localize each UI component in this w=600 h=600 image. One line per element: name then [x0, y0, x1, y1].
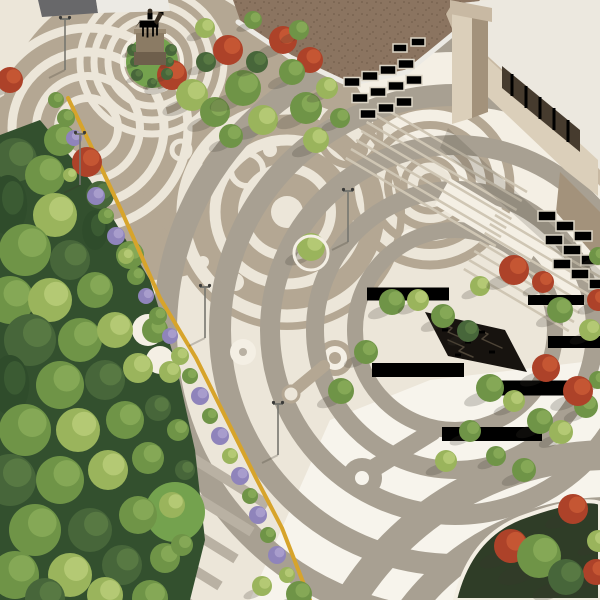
tree-highlight: [54, 460, 80, 486]
lamp-pole: [204, 288, 206, 338]
box: [574, 231, 592, 241]
box: [455, 354, 461, 357]
tree-highlight: [467, 422, 479, 434]
box: [393, 44, 407, 52]
tree-highlight: [64, 557, 88, 581]
paving-ring: [239, 348, 247, 356]
tree-highlight: [165, 69, 172, 76]
box: [380, 66, 396, 75]
tree-highlight: [259, 578, 270, 589]
box: [589, 279, 600, 289]
tree-highlight: [4, 280, 30, 306]
tree-highlight: [465, 322, 477, 334]
box: [142, 26, 144, 37]
tree-highlight: [306, 49, 320, 63]
box: [360, 110, 376, 119]
statue-pedestal: [134, 29, 166, 65]
tree-highlight: [182, 462, 193, 473]
tree-highlight: [203, 54, 214, 65]
tree-highlight: [133, 499, 154, 520]
tree-highlight: [228, 126, 241, 139]
lamp-head: [74, 131, 77, 134]
tree-highlight: [312, 129, 326, 143]
tree-highlight: [259, 108, 276, 125]
box: [553, 108, 556, 130]
tree-highlight: [224, 38, 241, 55]
paving-ring: [355, 471, 369, 485]
shape: [96, 0, 170, 13]
tree-highlight: [2, 181, 24, 215]
tree-highlight: [120, 404, 141, 425]
tree-highlight: [218, 429, 228, 439]
box: [539, 97, 542, 119]
paving-ring: [263, 143, 277, 157]
tree-highlight: [83, 150, 100, 167]
tree-highlight: [44, 282, 68, 306]
tree-highlight: [100, 580, 120, 600]
box: [378, 104, 394, 113]
tree-highlight: [558, 422, 571, 435]
tree-highlight: [110, 315, 130, 335]
lamp-head: [59, 16, 62, 19]
tree-highlight: [135, 70, 142, 77]
lamp-head: [208, 284, 211, 287]
tree-highlight: [100, 363, 122, 385]
tree-highlight: [540, 273, 552, 285]
box: [372, 363, 464, 377]
box: [406, 76, 422, 85]
box: [563, 245, 581, 255]
aerial-plaza-render: [0, 0, 600, 600]
tree-highlight: [9, 555, 35, 581]
tree-highlight: [167, 363, 179, 375]
tree-highlight: [156, 309, 166, 319]
tree-highlight: [521, 460, 534, 473]
tree-highlight: [587, 321, 599, 333]
tree-highlight: [228, 449, 237, 458]
shape: [472, 6, 488, 118]
tree-highlight: [6, 69, 20, 83]
paving-ring: [329, 352, 341, 364]
tree-highlight: [188, 369, 197, 378]
box: [344, 78, 360, 87]
tree-highlight: [440, 306, 453, 319]
tree-highlight: [54, 93, 63, 102]
statue-rider-head: [148, 9, 153, 14]
lamp-head: [199, 284, 202, 287]
tree-highlight: [74, 322, 98, 346]
tree-highlight: [295, 583, 309, 597]
lamp-head: [281, 401, 284, 404]
box: [545, 235, 563, 245]
tree-highlight: [285, 568, 294, 577]
tree-highlight: [154, 397, 168, 411]
tree-highlight: [23, 318, 52, 347]
tree-highlight: [144, 445, 162, 463]
tree-highlight: [117, 548, 139, 570]
tree-highlight: [511, 392, 523, 404]
box: [479, 331, 485, 334]
lamp-head: [351, 188, 354, 191]
box: [398, 60, 414, 69]
tree-highlight: [569, 497, 586, 514]
tree-highlight: [104, 209, 113, 218]
box: [370, 88, 386, 97]
tree-highlight: [84, 512, 108, 536]
tree-highlight: [3, 458, 32, 487]
tree-highlight: [388, 291, 402, 305]
tree-highlight: [275, 548, 285, 558]
box: [396, 98, 412, 107]
box: [352, 94, 368, 103]
box: [556, 221, 574, 231]
tree-highlight: [134, 356, 151, 373]
tree-highlight: [72, 412, 96, 436]
lamp-head: [342, 188, 345, 191]
tree-highlight: [49, 197, 73, 221]
lamp-pole: [277, 405, 279, 455]
box: [511, 74, 514, 96]
shape: [452, 6, 472, 124]
box: [388, 82, 404, 91]
tree-highlight: [574, 379, 591, 396]
tree-highlight: [168, 58, 174, 64]
tree-highlight: [18, 228, 47, 257]
lamp-head: [68, 16, 71, 19]
tree-highlight: [54, 365, 80, 391]
tree-highlight: [324, 79, 336, 91]
tree-highlight: [208, 409, 217, 418]
box: [553, 259, 571, 269]
tree-highlight: [363, 342, 376, 355]
tree-highlight: [168, 329, 177, 338]
box: [152, 26, 154, 37]
box: [489, 351, 495, 354]
tree-highlight: [266, 528, 275, 537]
render-canvas: [0, 0, 600, 600]
box: [147, 27, 149, 38]
tree-highlight: [415, 291, 427, 303]
box: [571, 269, 589, 279]
box: [148, 13, 153, 20]
box: [538, 211, 556, 221]
tree-highlight: [169, 45, 176, 52]
box: [525, 86, 528, 108]
tree-highlight: [178, 349, 188, 359]
tree-highlight: [256, 508, 266, 518]
tree-highlight: [175, 421, 187, 433]
tree-highlight: [18, 408, 47, 437]
shape: [136, 33, 164, 52]
tree-highlight: [28, 508, 57, 537]
lamp-pole: [79, 135, 81, 185]
tree-highlight: [90, 275, 110, 295]
tree-highlight: [248, 489, 257, 498]
tree-highlight: [188, 82, 206, 100]
tree-highlight: [337, 380, 351, 394]
tree-highlight: [134, 269, 144, 279]
tree-highlight: [103, 453, 125, 475]
box: [567, 120, 570, 142]
tree-highlight: [124, 249, 133, 258]
tree-highlight: [4, 361, 26, 395]
tree-highlight: [144, 289, 153, 298]
tree-highlight: [198, 389, 208, 399]
tree-highlight: [68, 169, 76, 177]
tree-highlight: [533, 538, 557, 562]
tree-highlight: [536, 410, 550, 424]
tree-highlight: [486, 376, 501, 391]
lamp-head: [272, 401, 275, 404]
tree-highlight: [296, 22, 307, 33]
tree-highlight: [65, 243, 87, 265]
tree-highlight: [238, 469, 248, 479]
tree-highlight: [254, 53, 266, 65]
tree-highlight: [202, 20, 213, 31]
tree-highlight: [561, 562, 581, 582]
tree-highlight: [542, 356, 557, 371]
shape: [134, 52, 166, 65]
tree-highlight: [556, 299, 570, 313]
tree-highlight: [94, 189, 104, 199]
tree-highlight: [168, 494, 182, 508]
tree-highlight: [288, 61, 302, 75]
tree-highlight: [337, 110, 348, 121]
tree-highlight: [493, 448, 504, 459]
tree-highlight: [114, 229, 124, 239]
box: [442, 329, 448, 332]
tree-highlight: [40, 158, 62, 180]
box: [362, 72, 378, 81]
lamp-pole: [347, 192, 349, 242]
paving-ring: [148, 9, 153, 14]
box: [156, 25, 158, 36]
lamp-pole: [64, 20, 66, 70]
tree-highlight: [510, 258, 527, 275]
tree-highlight: [251, 13, 261, 23]
box: [411, 38, 425, 46]
tree-highlight: [151, 79, 157, 85]
tree-highlight: [179, 536, 191, 548]
tree-highlight: [443, 452, 455, 464]
tree-highlight: [64, 111, 74, 121]
paving-ring: [197, 256, 209, 268]
lamp-head: [83, 131, 86, 134]
